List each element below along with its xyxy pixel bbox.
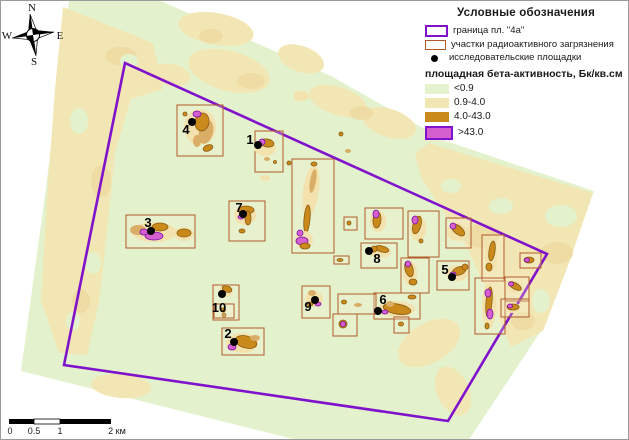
blob-gold [177,229,191,237]
site-number-3: 3 [144,215,151,230]
legend-title: Условные обозначения [425,7,627,19]
site-number-7: 7 [235,200,242,215]
zone-rect[interactable] [482,235,504,281]
green-hole [489,198,513,214]
zone-swatch-icon [425,40,446,50]
green-hole [545,205,577,227]
research-site-dot-10[interactable] [218,290,226,298]
compass-letter: E [57,30,64,42]
class-swatch-icon [425,98,449,108]
zone-rect[interactable] [344,217,357,230]
boundary-swatch-icon [425,25,448,37]
compass-rose-icon: NESW [2,2,64,68]
tan-patch [199,29,223,43]
blob-gold [274,161,277,164]
blob-gold [486,263,492,271]
blob-gold [419,239,423,243]
zone-rect[interactable] [333,314,357,336]
legend-item-label: участки радиоактивного загрязнения [451,40,614,50]
blob-tan [386,301,394,307]
legend-class-label: 0.9-4.0 [454,98,485,108]
blob-gold [287,161,291,165]
blob-gold [399,322,404,326]
zone-rect[interactable] [408,211,439,257]
zone-rect[interactable] [401,258,429,293]
zone-site-3[interactable] [126,215,195,248]
blob-tan [193,135,201,147]
blob-mag [509,282,514,286]
blob-gold [183,112,187,116]
scalebar-label: 0.5 [28,426,41,436]
site-number-1: 1 [246,132,253,147]
legend-class-0.9-4.0: 0.9-4.0 [425,98,627,108]
research-site-dot-8[interactable] [365,247,373,255]
site-dot-icon [431,55,438,62]
zone-rect[interactable] [501,299,529,317]
blob-halo [293,91,309,101]
legend-class-label: 4.0-43.0 [454,112,491,122]
site-number-9: 9 [304,299,311,314]
compass-letter: S [31,56,37,68]
blob-gold [311,162,317,166]
zone-rect[interactable] [505,277,529,301]
zone-rect[interactable] [394,317,409,333]
legend-item-label: граница пл. "4а" [453,26,524,36]
legend-class-label: >43.0 [458,128,483,138]
zone-rect[interactable] [334,256,349,264]
legend-item-sites: исследовательские площадки [425,53,627,63]
legend-class-4.0-43.0: 4.0-43.0 [425,112,627,122]
research-site-dot-5[interactable] [448,273,456,281]
blob-gold [239,229,245,233]
research-site-dot-9[interactable] [311,296,319,304]
site-number-2: 2 [224,326,231,341]
blob-mag [382,310,388,314]
class-swatch-icon [425,112,449,122]
map-document: 41371085692 NESW 00.512 км Условные обоз… [0,0,629,440]
blob-mag [412,216,418,224]
green-hole [441,179,461,193]
zone-rect[interactable] [365,208,403,239]
legend-item-zones: участки радиоактивного загрязнения [425,40,627,50]
blob-mag [193,111,201,117]
blob-mag [508,304,513,308]
blob-halo [260,175,270,181]
blob-gold [462,264,468,270]
blob-mag [487,309,493,319]
legend-activity-header: площадная бета-активность, Бк/кв.см [425,68,627,80]
legend-item-label: исследовательские площадки [449,53,581,63]
blob-mag [450,223,456,229]
scale-bar: 00.512 км [7,419,125,436]
zone-rect[interactable] [446,218,471,248]
blob-tan [264,157,270,161]
green-hole [70,108,88,134]
compass-letter: N [28,2,36,14]
blob-gold [300,243,310,249]
zone-rect[interactable] [520,253,541,268]
legend-class-label: <0.9 [454,84,474,94]
research-site-dot-6[interactable] [374,307,382,315]
tan-patch [237,73,265,89]
legend-classes: <0.90.9-4.04.0-43.0>43.0 [425,84,627,140]
blob-tan [308,290,316,296]
scalebar-label: 0 [7,426,12,436]
scalebar-label: 1 [57,426,62,436]
blob-tan [250,335,260,341]
blob-gold [409,279,417,285]
site-number-5: 5 [441,262,448,277]
legend-class-<0.9: <0.9 [425,84,627,94]
blob-mag [373,210,379,218]
scalebar-label: 2 км [108,426,126,436]
blob-gold [342,300,347,304]
class-swatch-icon [425,126,453,140]
legend: Условные обозначения граница пл. "4а" уч… [425,5,627,144]
blob-mag [525,258,530,262]
zone-site-1[interactable] [254,131,283,172]
blob-tan [345,149,351,153]
blob-gold [408,295,416,299]
zone-rect[interactable] [292,159,334,253]
blob-mag [485,289,491,297]
blob-gold [339,132,343,136]
legend-item-boundary: граница пл. "4а" [425,25,627,37]
site-number-4: 4 [182,122,190,137]
research-site-dot-1[interactable] [254,141,262,149]
tan-patch [349,106,373,120]
site-number-6: 6 [379,292,386,307]
zone-rect[interactable] [338,294,376,314]
class-swatch-icon [425,84,449,94]
compass-letter: W [2,30,13,42]
blob-gold [485,323,489,329]
blob-mag [297,230,303,236]
green-hole [532,289,550,313]
legend-class->43.0: >43.0 [425,126,627,140]
blob-mag [341,322,346,327]
blob-tan [354,303,362,307]
blob-mag [406,261,411,267]
blob-gold [337,259,343,262]
site-number-10: 10 [212,300,226,315]
site-number-8: 8 [373,251,380,266]
blob-gold [347,221,351,225]
